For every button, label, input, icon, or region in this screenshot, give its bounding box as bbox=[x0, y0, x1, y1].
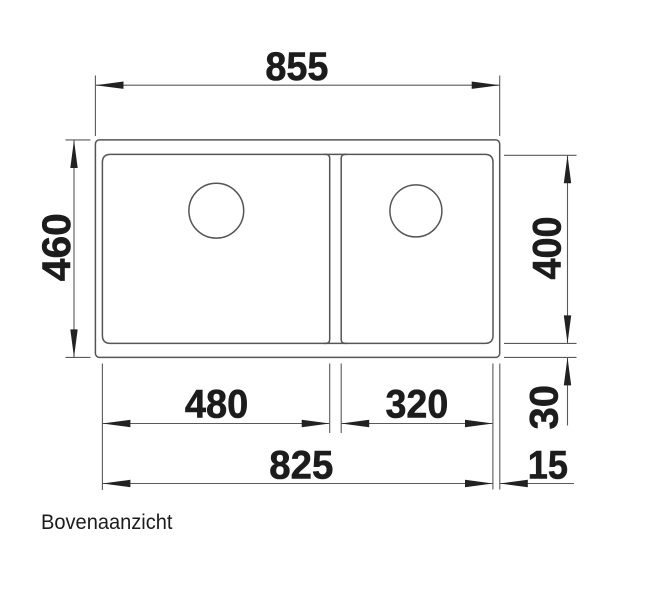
svg-text:30: 30 bbox=[523, 385, 567, 430]
svg-text:320: 320 bbox=[386, 382, 449, 426]
svg-text:Bovenaanzicht: Bovenaanzicht bbox=[41, 511, 173, 534]
svg-text:480: 480 bbox=[185, 382, 248, 426]
svg-text:460: 460 bbox=[35, 213, 79, 281]
svg-text:855: 855 bbox=[265, 45, 328, 89]
svg-text:825: 825 bbox=[269, 443, 333, 487]
svg-text:400: 400 bbox=[525, 217, 569, 280]
svg-text:15: 15 bbox=[528, 444, 568, 488]
